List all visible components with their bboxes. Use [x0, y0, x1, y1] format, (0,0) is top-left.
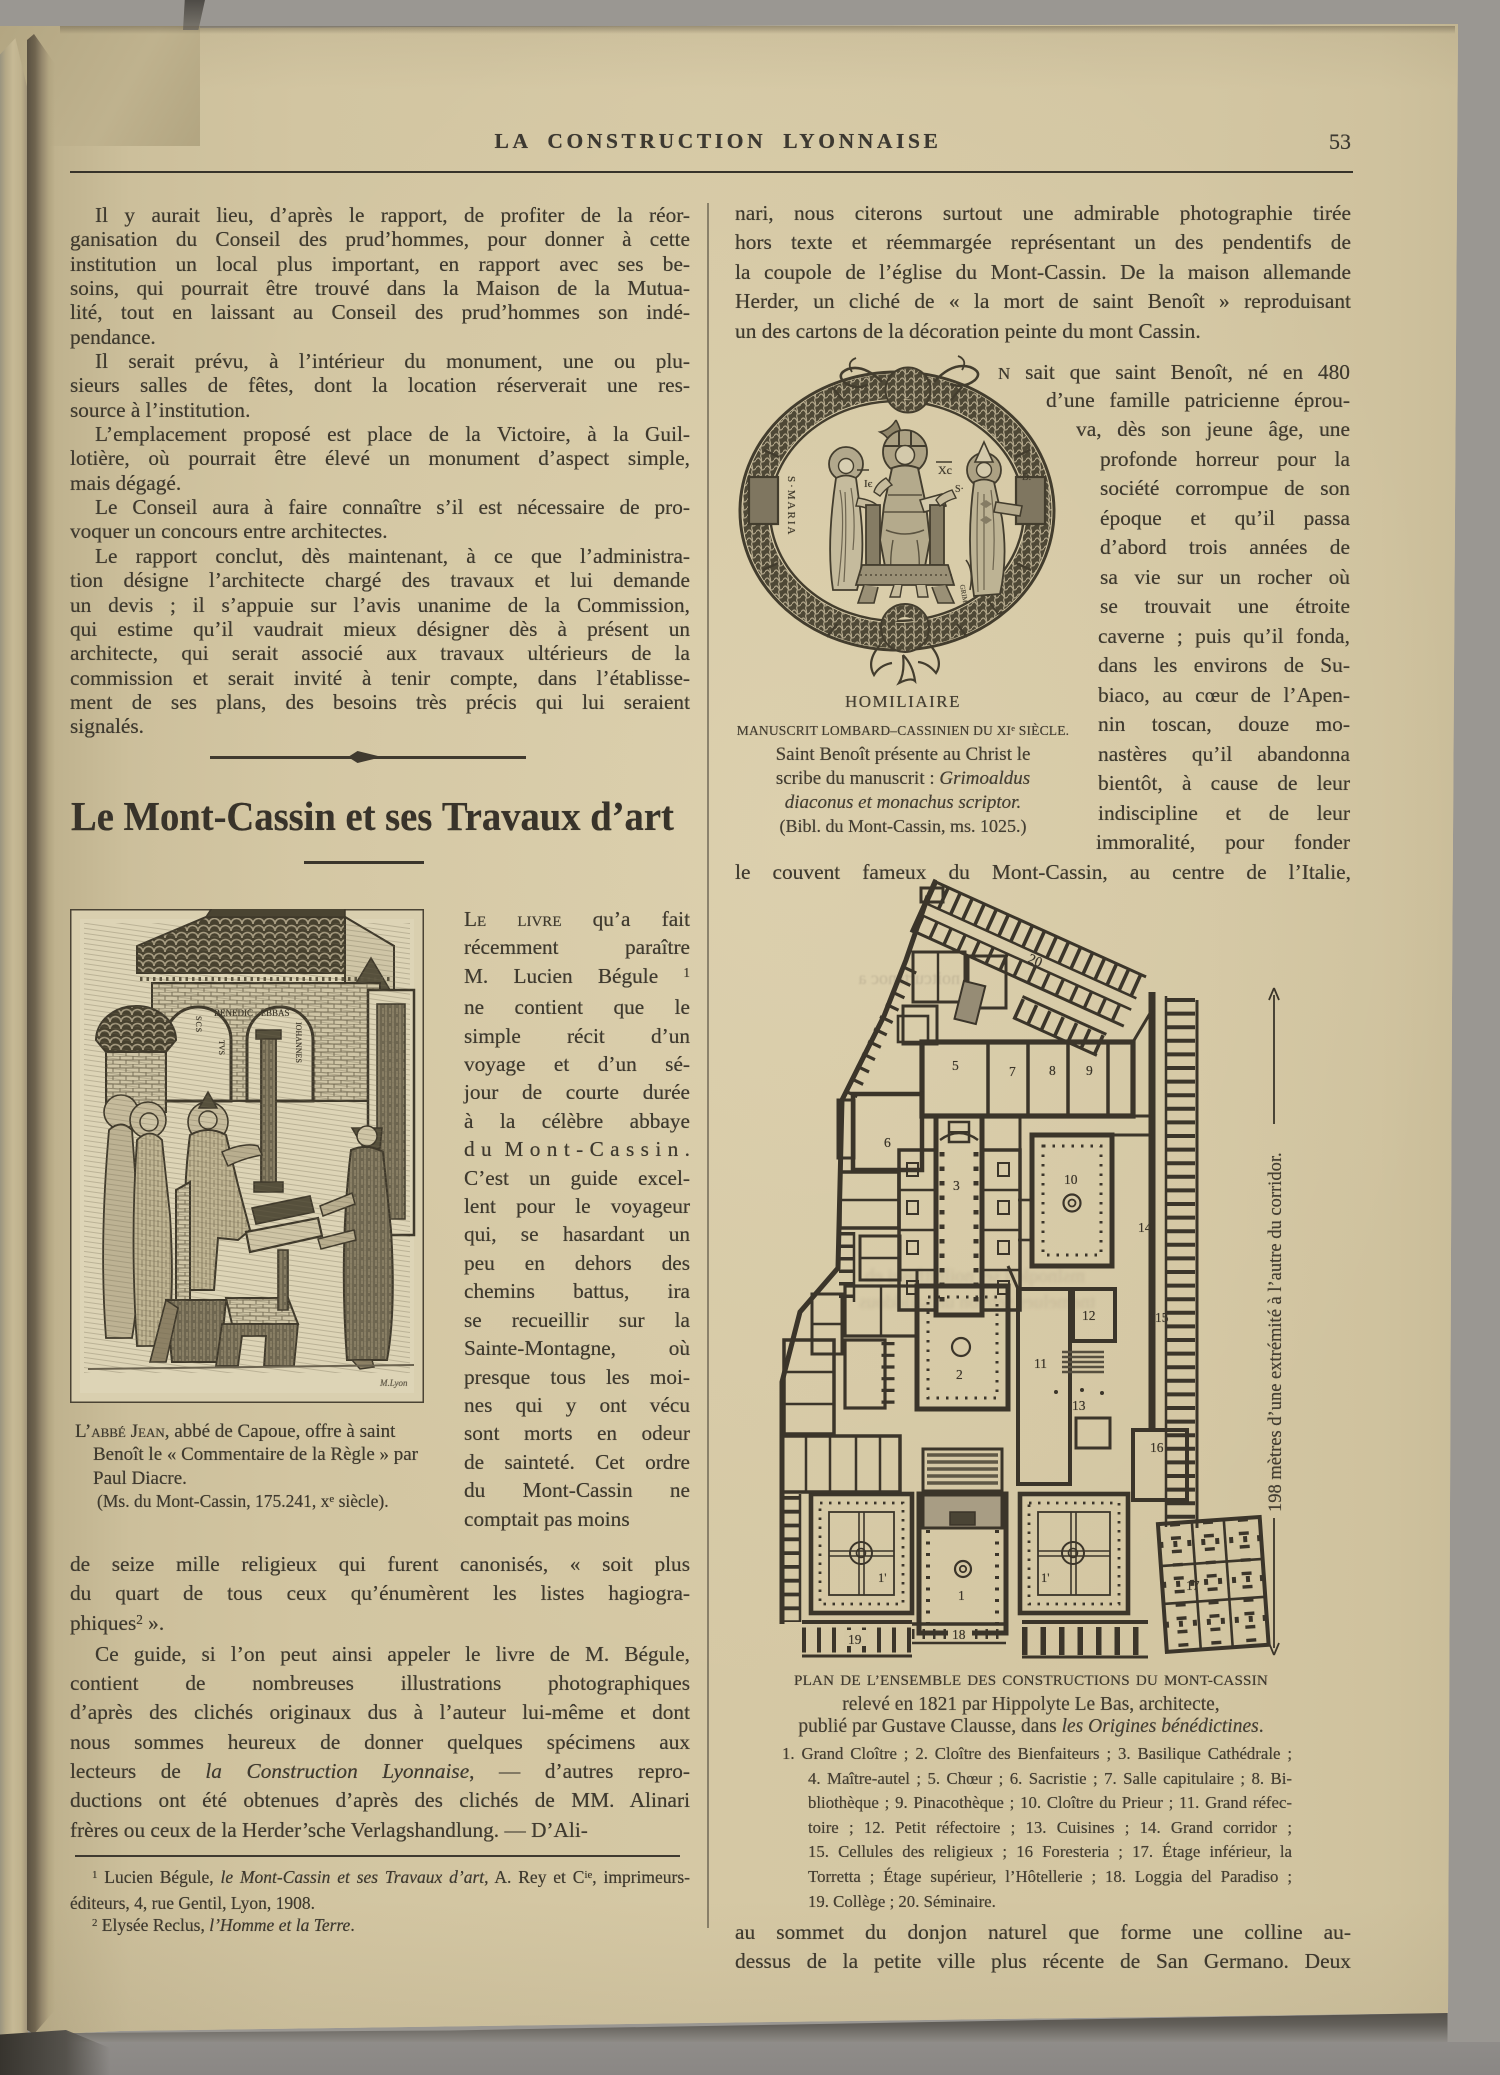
svg-text:GRIM: GRIM	[958, 584, 969, 604]
svg-text:S·: S·	[955, 484, 964, 495]
svg-text:11: 11	[1034, 1356, 1047, 1371]
svg-text:17: 17	[1186, 1578, 1200, 1593]
svg-text:6: 6	[884, 1135, 891, 1150]
svg-text:8: 8	[1049, 1063, 1056, 1078]
svg-text:16: 16	[1150, 1440, 1164, 1455]
svg-text:9: 9	[1086, 1063, 1093, 1078]
svg-text:2: 2	[956, 1367, 963, 1382]
svg-text:19: 19	[848, 1632, 862, 1647]
svg-text:5: 5	[952, 1058, 959, 1073]
svg-text:1': 1'	[1041, 1571, 1050, 1585]
svg-text:B.: B.	[1022, 472, 1031, 483]
svg-text:Iє: Iє	[864, 478, 873, 490]
svg-text:Xс: Xс	[938, 463, 952, 477]
svg-text:12: 12	[1082, 1308, 1096, 1323]
svg-text:1: 1	[958, 1588, 965, 1603]
svg-text:10: 10	[1064, 1172, 1078, 1187]
svg-text:14: 14	[1138, 1220, 1152, 1235]
svg-text:18: 18	[952, 1627, 966, 1642]
svg-text:198 mètres d’une extrémité à l: 198 mètres d’une extrémité à l’autre du …	[1266, 1152, 1286, 1512]
svg-text:7: 7	[1009, 1064, 1016, 1079]
svg-text:13: 13	[1072, 1398, 1086, 1413]
svg-text:15: 15	[1155, 1310, 1169, 1325]
svg-text:1': 1'	[878, 1571, 887, 1585]
svg-text:M.Lyon: M.Lyon	[379, 1378, 408, 1388]
svg-text:S·MARIA: S·MARIA	[785, 476, 797, 536]
svg-text:3: 3	[953, 1178, 960, 1193]
